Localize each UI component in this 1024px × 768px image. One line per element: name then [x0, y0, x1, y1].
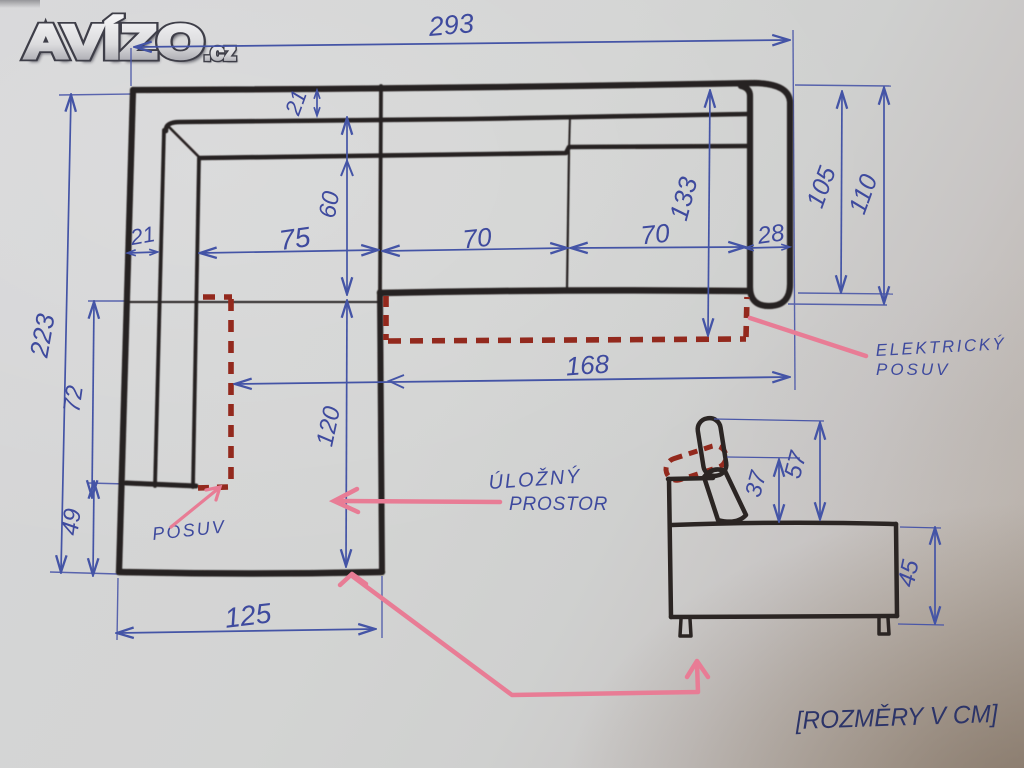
svg-text:21: 21 — [127, 221, 156, 250]
svg-text:168: 168 — [565, 349, 611, 382]
svg-text:[ROZMĚRY V CM]: [ROZMĚRY V CM] — [794, 699, 999, 735]
svg-text:125: 125 — [223, 597, 274, 634]
svg-text:75: 75 — [277, 221, 313, 256]
svg-text:45: 45 — [893, 557, 925, 589]
svg-text:AVÍZO: AVÍZO — [24, 15, 204, 68]
svg-text:293: 293 — [426, 8, 475, 42]
svg-text:ÚLOŽNÝ: ÚLOŽNÝ — [488, 465, 583, 494]
svg-text:49: 49 — [56, 507, 86, 537]
svg-text:110: 110 — [844, 171, 884, 218]
svg-text:POSUV: POSUV — [151, 516, 227, 544]
svg-text:POSUV: POSUV — [876, 360, 951, 379]
svg-text:133: 133 — [663, 173, 703, 223]
svg-text:70: 70 — [461, 222, 493, 255]
svg-text:223: 223 — [23, 311, 60, 360]
svg-text:70: 70 — [639, 218, 671, 251]
svg-text:28: 28 — [755, 219, 787, 250]
svg-text:37: 37 — [739, 467, 771, 500]
svg-text:72: 72 — [58, 384, 88, 414]
svg-text:57: 57 — [779, 447, 812, 481]
svg-text:.cz: .cz — [204, 39, 236, 66]
svg-text:105: 105 — [801, 163, 842, 212]
svg-text:60: 60 — [314, 189, 345, 221]
svg-text:ELEKTRICKÝ: ELEKTRICKÝ — [875, 334, 1007, 360]
svg-text:PROSTOR: PROSTOR — [509, 494, 608, 515]
svg-text:120: 120 — [311, 403, 346, 448]
